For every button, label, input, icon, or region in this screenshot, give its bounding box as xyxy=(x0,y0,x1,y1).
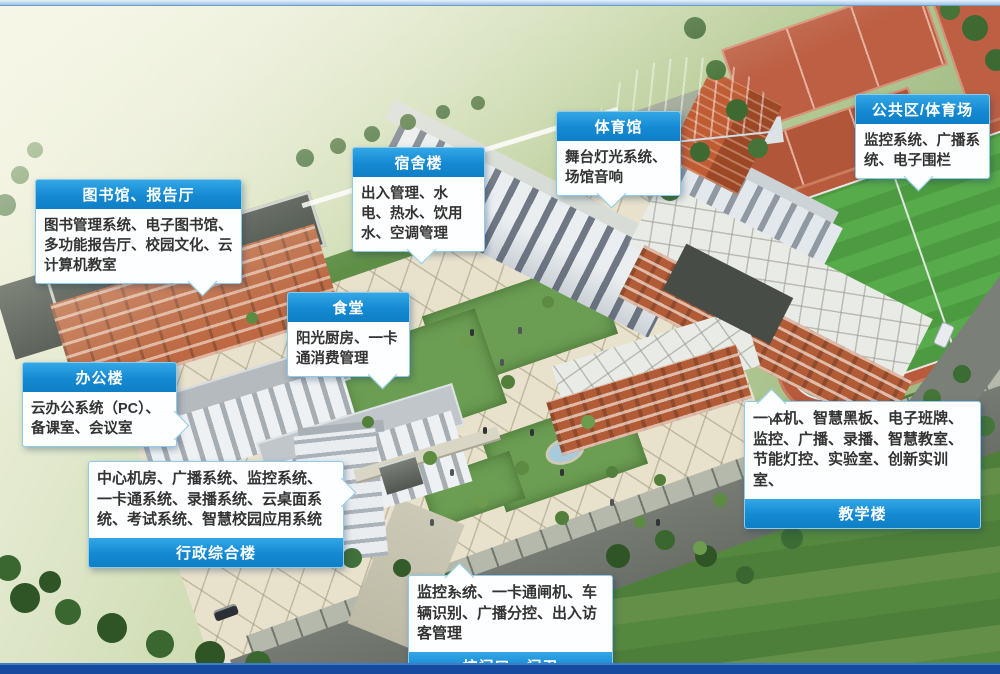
callout-school-gate-body: 监控系统、一卡通闸机、车辆识别、广播分控、出入访客管理 xyxy=(409,576,612,652)
callout-library-title: 图书馆、报告厅 xyxy=(36,180,241,209)
callout-dormitory-title: 宿舍楼 xyxy=(353,148,484,177)
bottom-blue-bar xyxy=(0,663,1000,674)
callout-canteen: 食堂 阳光厨房、一卡通消费管理 xyxy=(287,292,410,377)
callout-admin-building-body: 中心机房、广播系统、监控系统、一卡通系统、录播系统、云桌面系统、考试系统、智慧校… xyxy=(89,462,343,538)
callout-teaching-building-title: 教学楼 xyxy=(745,499,980,528)
callout-office-title: 办公楼 xyxy=(23,363,176,392)
callout-public-area-title: 公共区/体育场 xyxy=(856,95,989,124)
callout-admin-building: 中心机房、广播系统、监控系统、一卡通系统、录播系统、云桌面系统、考试系统、智慧校… xyxy=(88,461,344,568)
callout-gymnasium: 体育馆 舞台灯光系统、场馆音响 xyxy=(556,111,681,196)
callout-dormitory: 宿舍楼 出入管理、水电、热水、饮用水、空调管理 xyxy=(352,147,485,252)
callout-canteen-title: 食堂 xyxy=(288,293,409,322)
callout-admin-building-title: 行政综合楼 xyxy=(89,538,343,567)
callout-teaching-building: 一体机、智慧黑板、电子班牌、监控、广播、录播、智慧教室、节能灯控、实验室、创新实… xyxy=(744,401,981,529)
callout-school-gate: 监控系统、一卡通闸机、车辆识别、广播分控、出入访客管理 校门口、门卫 xyxy=(408,575,613,674)
top-blue-bar xyxy=(0,0,1000,6)
callout-library: 图书馆、报告厅 图书管理系统、电子图书馆、多功能报告厅、校园文化、云计算机教室 xyxy=(35,179,242,284)
callout-public-area: 公共区/体育场 监控系统、广播系统、电子围栏 xyxy=(855,94,990,179)
callout-gymnasium-title: 体育馆 xyxy=(557,112,680,141)
callout-office: 办公楼 云办公系统（PC）、备课室、会议室 xyxy=(22,362,177,447)
campus-aerial-diagram: 图书馆、报告厅 图书管理系统、电子图书馆、多功能报告厅、校园文化、云计算机教室 … xyxy=(0,0,1000,674)
callout-office-body: 云办公系统（PC）、备课室、会议室 xyxy=(23,392,176,446)
callout-teaching-building-body: 一体机、智慧黑板、电子班牌、监控、广播、录播、智慧教室、节能灯控、实验室、创新实… xyxy=(745,402,980,499)
callout-library-body: 图书管理系统、电子图书馆、多功能报告厅、校园文化、云计算机教室 xyxy=(36,209,241,283)
